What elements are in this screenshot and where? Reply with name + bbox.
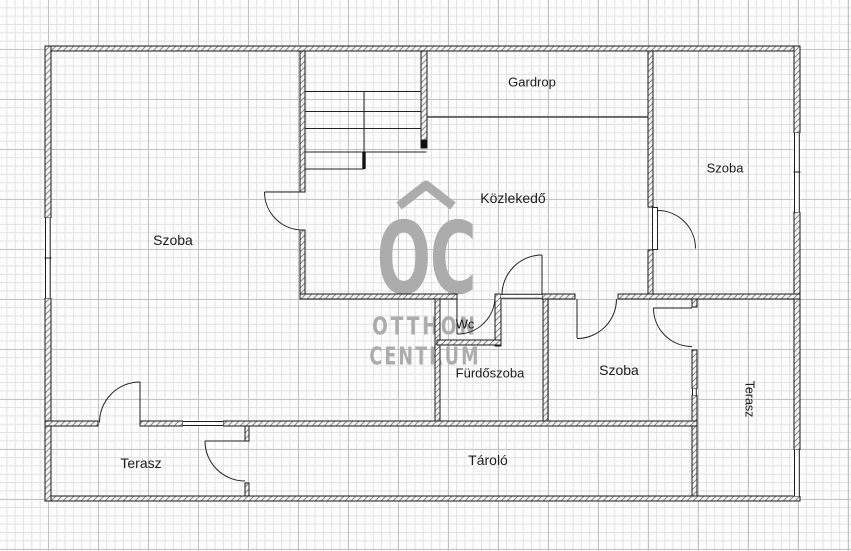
room-label-wc: Wc: [456, 318, 475, 331]
room-label-szoba-top-right: Szoba: [707, 162, 744, 175]
door-terasz-right: [654, 308, 693, 347]
room-label-furdoszoba: Fürdőszoba: [456, 367, 525, 380]
door-terasz-bottom: [100, 382, 141, 423]
stairs-icon: [305, 92, 648, 170]
floorplan-canvas: OC OTTHON CENTRUM: [0, 0, 851, 551]
room-label-gardrop: Gardrop: [508, 76, 556, 89]
room-label-terasz-bottom: Terasz: [120, 456, 161, 470]
door-szoba-left-kozlekedo: [265, 192, 303, 230]
door-tarolo: [205, 441, 245, 481]
room-label-szoba-middle: Szoba: [599, 363, 639, 377]
room-label-kozlekedo: Közlekedő: [480, 191, 545, 205]
windows: [45, 133, 801, 496]
door-szoba-middle: [577, 299, 617, 339]
room-label-tarolo: Tároló: [468, 453, 508, 467]
room-label-terasz-right: Terasz: [743, 381, 756, 418]
room-label-szoba-left: Szoba: [153, 233, 193, 247]
door-furdoszoba: [502, 255, 542, 295]
walls: [45, 46, 800, 501]
door-szoba-top-right: [653, 208, 696, 250]
